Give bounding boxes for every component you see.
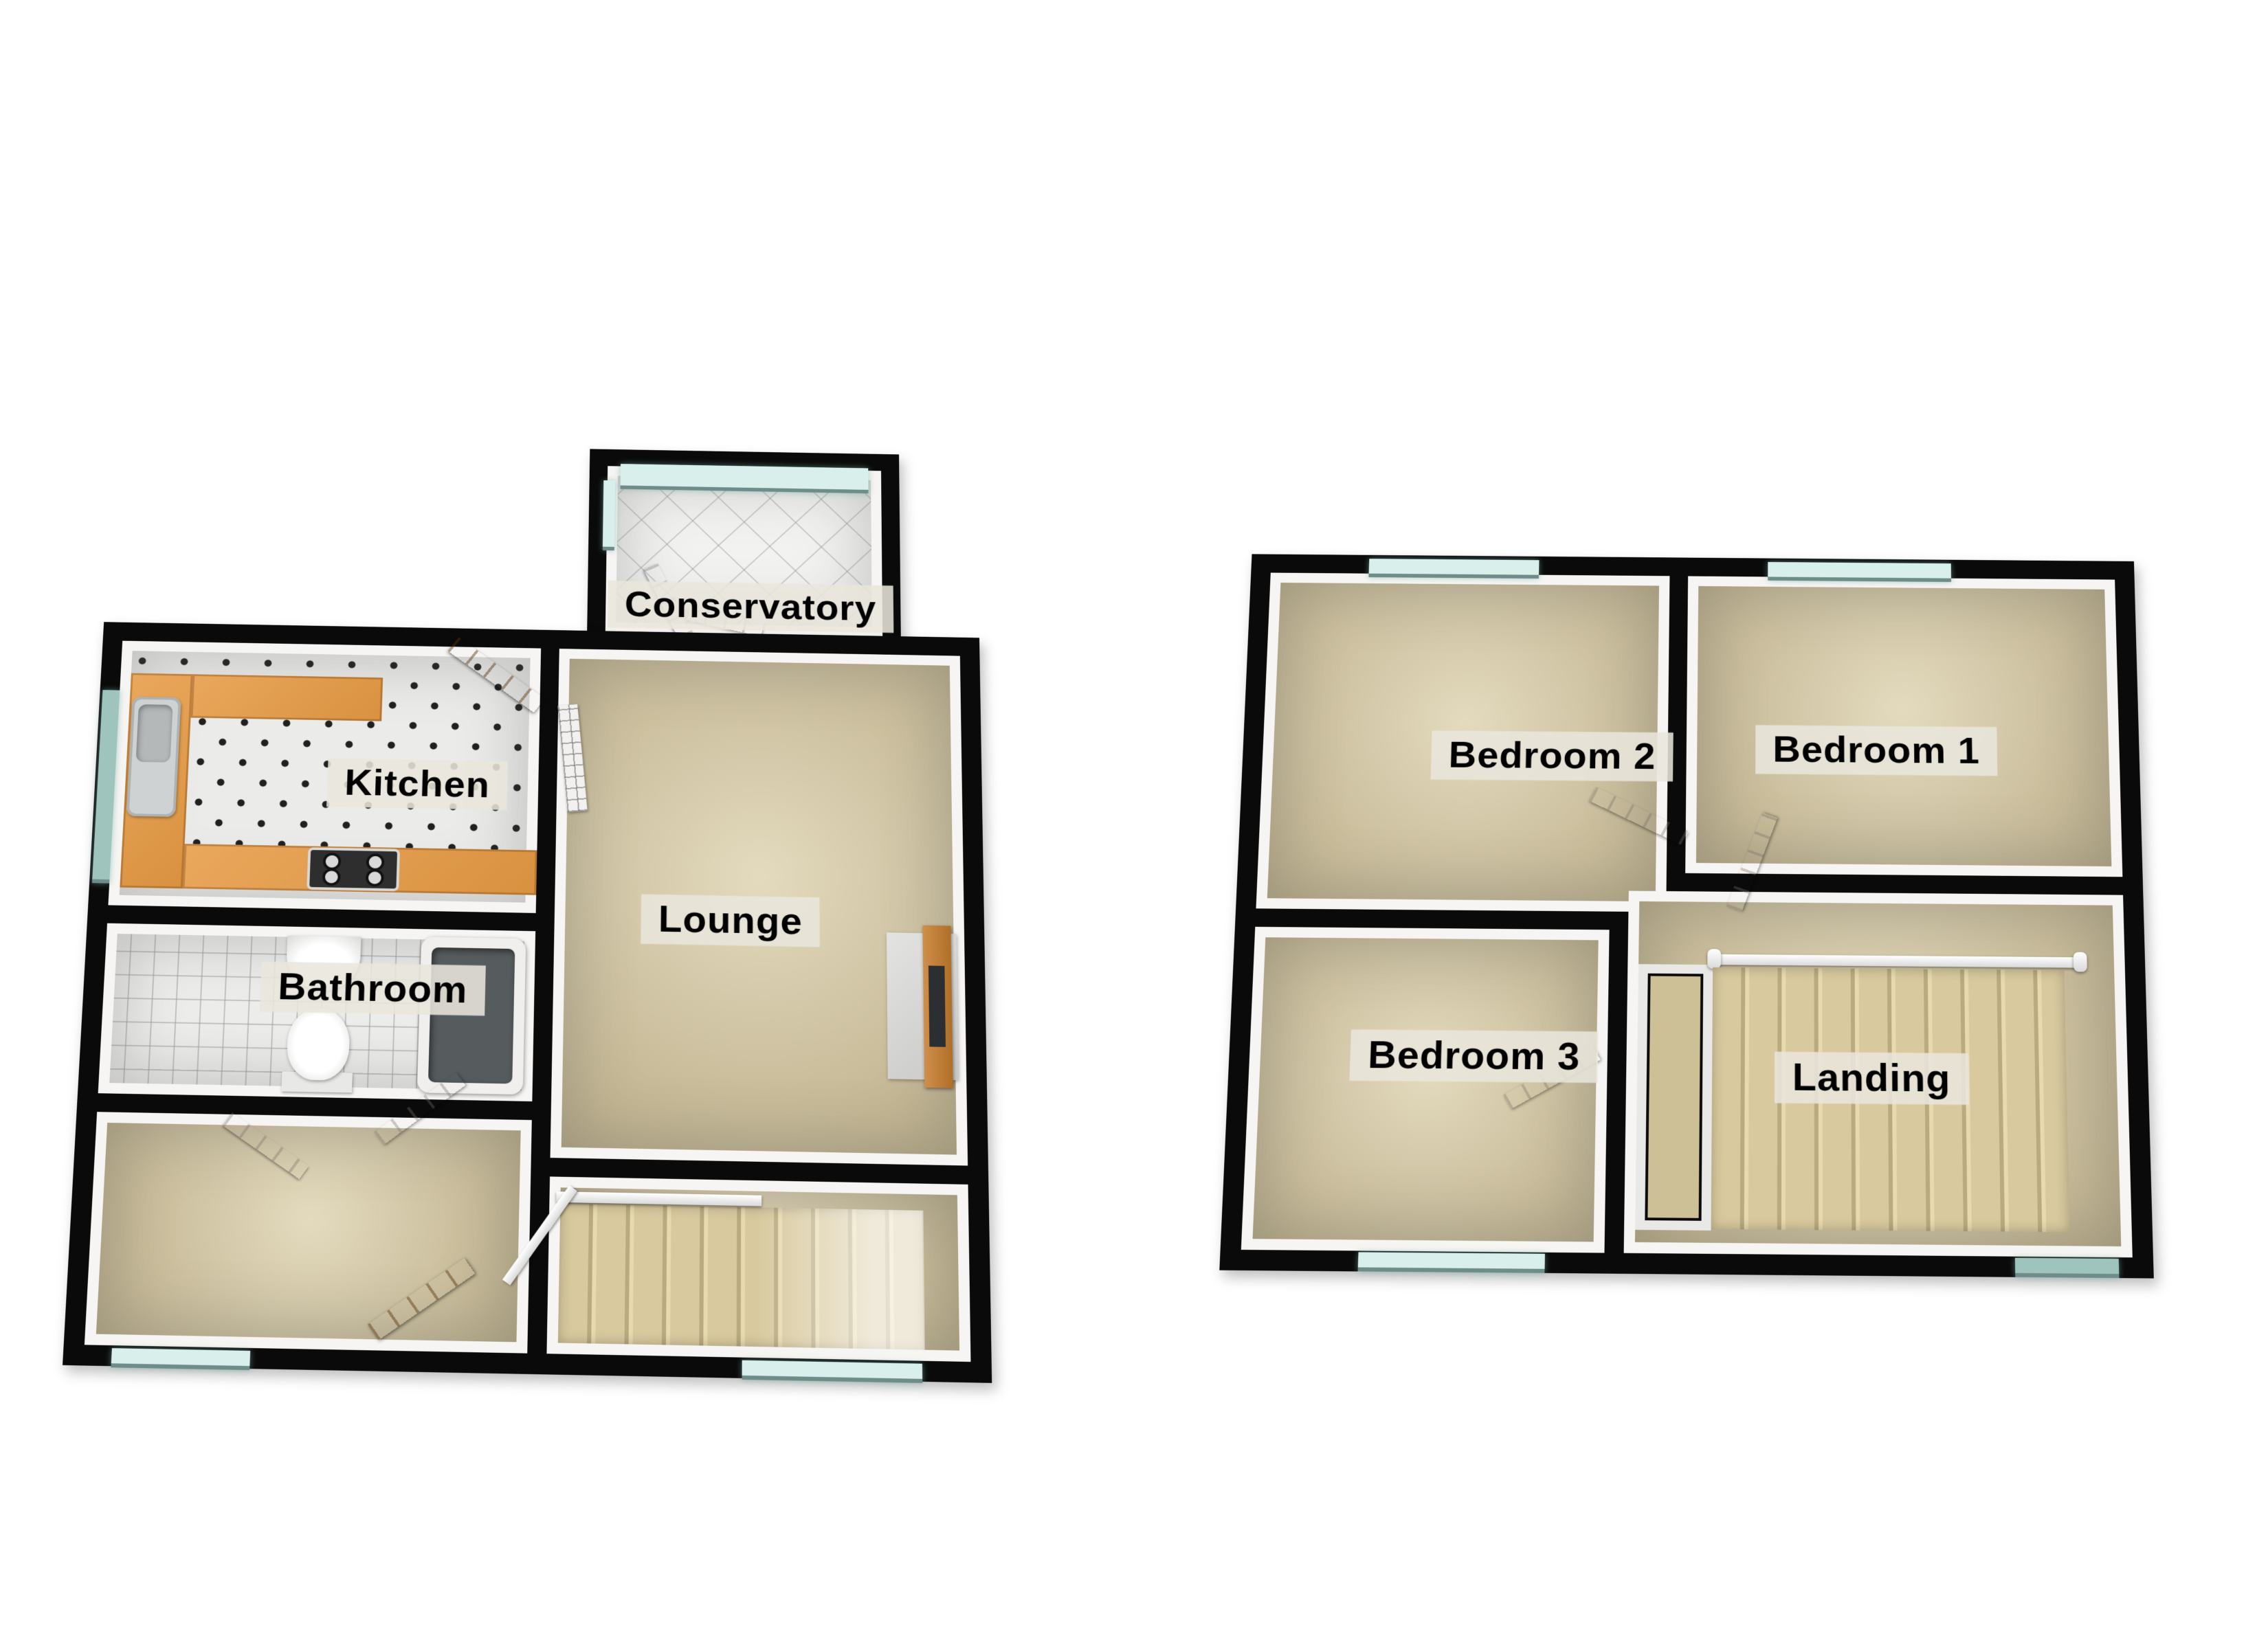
floorplan-page: { "floors": [ { "id": "ground-floor", "r…: [0, 0, 2268, 1649]
kitchen-counter-top: [191, 674, 383, 721]
room-label-lounge: Lounge: [641, 894, 820, 947]
room-label-conservatory: Conservatory: [608, 581, 893, 633]
bedroom-1-window: [1768, 562, 1951, 582]
room-hallway: [85, 1112, 532, 1353]
first-floor-block: [1219, 554, 2154, 1278]
room-label-landing: Landing: [1775, 1052, 1969, 1105]
stairwell-floor: [1647, 976, 1700, 1218]
room-label-bedroom-2: Bedroom 2: [1431, 730, 1674, 781]
room-stair-hall: [546, 1176, 970, 1362]
banister-newel-left: [1707, 949, 1721, 969]
ground-main-block: [63, 622, 992, 1383]
hall-window: [111, 1348, 250, 1370]
stairwell-box: [1635, 964, 1713, 1231]
banister-newel-right: [2074, 952, 2087, 972]
fireplace-inset: [929, 965, 946, 1046]
first-floor-plan: Bedroom 2 Bedroom 1 Bedroom 3 Landing: [1219, 554, 2154, 1278]
bedroom-3-window: [1358, 1252, 1545, 1272]
ground-floor-plan: Conservatory Kitchen Bathroom Lounge: [63, 440, 992, 1383]
room-label-bedroom-3: Bedroom 3: [1349, 1029, 1598, 1083]
kitchen-sink: [126, 697, 181, 817]
gas-hob: [309, 850, 397, 888]
bathtub: [417, 936, 526, 1095]
room-label-bedroom-1: Bedroom 1: [1755, 725, 1997, 776]
stairs-window: [742, 1360, 923, 1383]
room-label-kitchen: Kitchen: [326, 758, 508, 809]
landing-window: [2015, 1258, 2120, 1278]
room-label-bathroom: Bathroom: [260, 961, 486, 1016]
sink-bowl: [136, 704, 173, 763]
conservatory-side-window: [603, 480, 615, 550]
landing-banister: [1713, 954, 2082, 968]
staircase-upper-flight: [755, 1207, 925, 1349]
room-bedroom-3: [1241, 927, 1610, 1253]
bedroom-2-window: [1368, 559, 1539, 579]
conservatory-window: [621, 464, 869, 493]
